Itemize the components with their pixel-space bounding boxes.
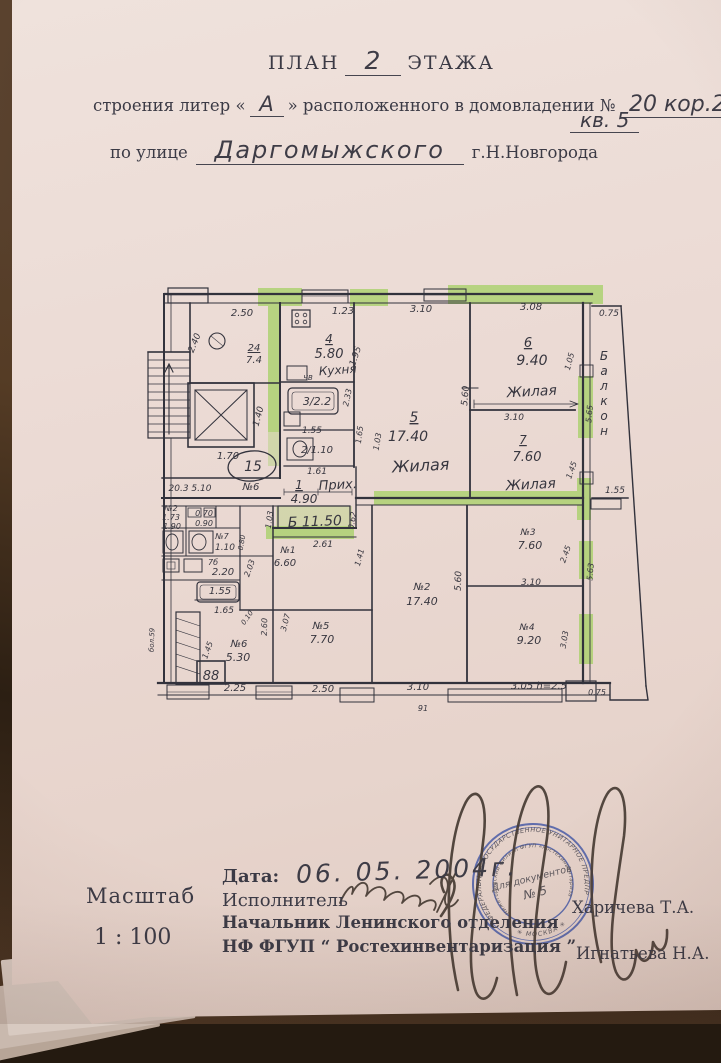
plan-label: 1.10 — [215, 543, 235, 553]
plan-label: 1.55 — [605, 486, 625, 496]
plan-label: 1.45 — [564, 460, 579, 480]
plan-label: №4 — [518, 623, 534, 633]
plan-label: 0.75 — [599, 309, 619, 319]
plan-label: 0.70 — [195, 509, 213, 518]
plan-label: 3.10 — [407, 682, 429, 693]
plan-label: 0.80 — [237, 534, 248, 551]
plan-label: 2.03 — [242, 558, 257, 578]
plan-label: №2 — [413, 582, 431, 593]
plan-label: 2.45 — [558, 544, 573, 564]
plan-label: 7.60 — [518, 539, 543, 552]
plan-label: 3.08 — [520, 302, 542, 313]
plan-label: 5.60 — [460, 385, 472, 406]
plan-label: 17.40 — [406, 595, 438, 608]
plan-labels: 2.501.233.103.080.752.40247.41.401.7015№… — [148, 302, 626, 713]
plan-label: ЧВ — [303, 374, 313, 382]
plan-label: 1 — [295, 478, 303, 492]
plan-label: Балкон — [599, 349, 608, 438]
plan-label: 1.45 — [200, 640, 215, 660]
plan-label: 5.80 — [315, 347, 344, 362]
plan-label: 7б — [208, 558, 218, 567]
date-label: Дата: — [222, 866, 279, 887]
plan-label: 7.70 — [310, 633, 335, 646]
plan-label: 1.65 — [354, 425, 365, 444]
plan-label: 2.50 — [231, 308, 253, 319]
plan-label: 2.20 — [212, 567, 234, 578]
plan-label: 3/2.2 — [303, 395, 331, 408]
plan-label: 3.07 — [279, 612, 293, 632]
plan-label: Прих. — [318, 477, 357, 494]
director-signature — [441, 786, 667, 998]
plan-label: 3.10 — [504, 413, 524, 423]
plan-label: 3.10 — [410, 304, 432, 315]
round-stamp: ФЕДЕРАЛЬНОЕ ГОСУДАРСТВЕННОЕ УНИТАРНОЕ ПР… — [460, 811, 605, 956]
scale-value: 1 : 100 — [94, 925, 171, 950]
plan-label: 5.65 — [584, 405, 595, 424]
signature2-name: Игнатьева Н.А. — [576, 944, 710, 963]
plan-label: 91 — [418, 704, 428, 713]
plan-label: 2.33 — [341, 388, 354, 407]
plan-label: №5 — [312, 621, 330, 632]
plan-label: 7 — [519, 433, 527, 447]
plan-label: 3.10 — [521, 578, 541, 588]
plan-label: 1.05 — [563, 352, 576, 372]
plan-label: 1.73 — [162, 513, 180, 522]
stamp-center-line2: № 5 — [521, 883, 549, 903]
plan-label: 2.50 — [312, 684, 334, 695]
plan-label: 3.03 — [559, 630, 571, 649]
plan-label: 0.10 — [240, 609, 256, 627]
plan-label: 5 — [410, 410, 419, 426]
plan-label: 9.40 — [516, 353, 547, 369]
plan-label: 1.55 — [209, 586, 231, 597]
plan-label: 5.63 — [585, 563, 596, 582]
plan-label: 1.95 — [348, 345, 364, 367]
plan-label: 2.60 — [260, 618, 270, 636]
organization-label: НФ ФГУП “ Ростехинвентаризация ” — [222, 937, 576, 956]
plan-label: 1.03 — [372, 432, 384, 451]
plan-label: 2/1.10 — [301, 445, 333, 456]
plan-label: 4 — [325, 332, 333, 346]
plan-label: 17.40 — [388, 429, 428, 445]
plan-label: 6 — [524, 336, 532, 351]
plan-label: 0.75 — [588, 688, 606, 697]
plan-label: бол.59 — [148, 627, 157, 652]
plan-label: №7 — [214, 532, 229, 541]
scale-label: Масштаб — [86, 884, 195, 908]
plan-label: 6.60 — [274, 558, 296, 569]
plan-label: 0.90 — [195, 519, 213, 528]
plan-label: №3 — [519, 528, 535, 538]
plan-label: 1.41 — [353, 548, 366, 568]
plan-label: 88 — [203, 669, 220, 684]
plan-label: 1.55 — [302, 426, 322, 436]
plan-label: 15 — [244, 459, 262, 475]
plan-label: Жилая — [391, 455, 451, 477]
plan-label: 3.05 h=2.5 — [511, 681, 567, 692]
plan-label: №6 — [242, 482, 260, 493]
plan-label: Жилая — [504, 476, 556, 495]
plan-label: Жилая — [505, 383, 557, 402]
plan-label: 20.3 5.10 — [169, 484, 212, 494]
plan-label: №2 — [163, 504, 177, 513]
plan-label: 1.65 — [214, 606, 234, 616]
plan-label: Б 11.50 — [288, 513, 343, 531]
plan-label: 5.60 — [454, 570, 465, 591]
executor-label: Исполнитель — [222, 890, 348, 911]
plan-label: 4.90 — [291, 492, 318, 506]
plan-label: 1.70 — [217, 451, 239, 462]
plan-label: 5.30 — [226, 651, 251, 664]
plan-label: 1.61 — [307, 467, 327, 477]
plan-label: №6 — [230, 639, 248, 650]
signature1-name: Харичева Т.А. — [572, 898, 694, 917]
plan-label: 2.25 — [224, 683, 246, 694]
plan-label: 7.60 — [513, 450, 542, 465]
photo-background: ПЛАН 2 ЭТАЖА строения литер « А » распол… — [0, 0, 721, 1024]
chief-label: Начальник Ленинского отделения — [222, 913, 559, 932]
plan-label: 7.4 — [246, 355, 262, 366]
plan-label: 2.61 — [313, 540, 333, 550]
plan-label: 24 — [248, 343, 261, 354]
plan-label: 1.90 — [163, 522, 181, 531]
plan-label: 1.23 — [332, 306, 354, 317]
plan-label: №1 — [279, 546, 295, 556]
plan-label: 9.20 — [517, 634, 542, 647]
